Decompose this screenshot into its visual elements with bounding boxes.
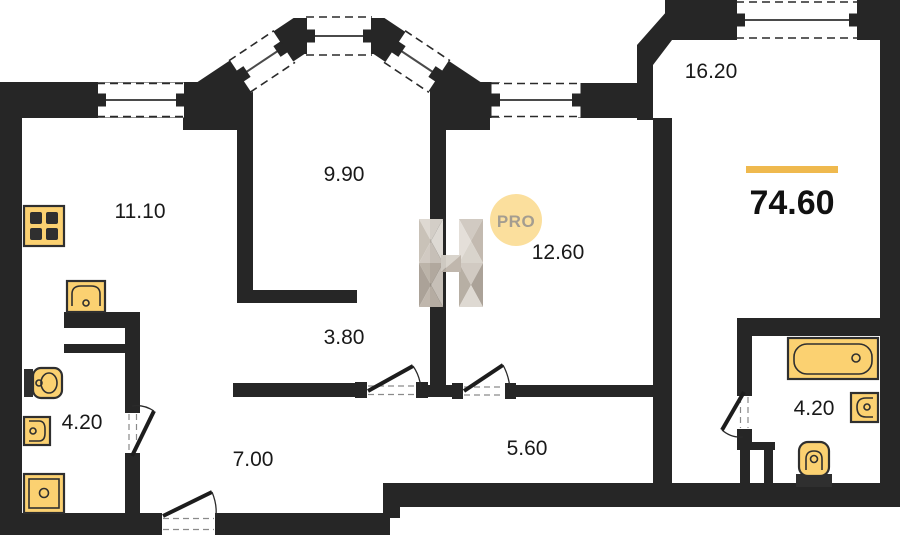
room-area-label-right-room: 16.20 bbox=[685, 60, 738, 83]
corridor-door bbox=[368, 366, 421, 395]
room4-window bbox=[736, 0, 858, 40]
wall-room3-bottom-b bbox=[516, 385, 670, 397]
shower-tray-icon bbox=[24, 474, 64, 513]
bath-left-door bbox=[129, 406, 154, 456]
wall-kitchen-top bbox=[0, 83, 101, 118]
room-area-label-kitchen: 11.10 bbox=[115, 200, 166, 223]
wall-bath-right-top bbox=[737, 318, 880, 336]
door-bath-right-hinge-bottom bbox=[737, 429, 752, 440]
logo-h-icon bbox=[419, 219, 483, 307]
shaft-right-wall bbox=[764, 450, 773, 483]
kitchen-sink-icon bbox=[67, 281, 105, 312]
room-area-label-bay-room: 9.90 bbox=[324, 163, 365, 186]
entry-door bbox=[163, 492, 216, 530]
shaft-top-wall bbox=[737, 442, 775, 450]
total-area-accent-bar bbox=[746, 166, 838, 173]
door-corridor-hinge-right bbox=[416, 382, 428, 398]
door-room3-hinge-left bbox=[452, 383, 463, 399]
room-area-label-hall: 7.00 bbox=[233, 448, 274, 471]
stove-icon bbox=[24, 206, 64, 246]
total-area-value: 74.60 bbox=[749, 184, 834, 222]
small-sink-right-icon bbox=[851, 393, 878, 422]
door-room3-hinge-right bbox=[505, 383, 516, 399]
door-entry-hinge-right bbox=[215, 513, 226, 535]
wall-bath-left-top-b bbox=[64, 344, 130, 353]
wall-right-outer bbox=[880, 0, 900, 507]
toilet-right-icon bbox=[796, 442, 832, 487]
kitchen-window bbox=[97, 83, 185, 118]
wall-bath-left-right-b bbox=[125, 464, 140, 513]
small-sink-left-icon bbox=[24, 417, 50, 445]
door-entry-hinge-left bbox=[150, 513, 162, 535]
room-area-label-middle-room: 12.60 bbox=[532, 241, 585, 264]
logo-pro-label: PRO bbox=[497, 212, 535, 231]
wall-bath-left-right-a bbox=[125, 312, 140, 403]
door-corridor-hinge-left bbox=[355, 382, 367, 398]
wall-room3-top-a bbox=[446, 83, 495, 118]
wall-room2-bottom bbox=[237, 290, 357, 303]
toilet-left-icon bbox=[24, 368, 62, 398]
door-bath-left-hinge-top bbox=[125, 402, 140, 413]
shaft-left-wall bbox=[740, 450, 750, 483]
wall-divider-kitchen bbox=[237, 100, 253, 303]
room-area-label-corridor: 3.80 bbox=[324, 326, 365, 349]
floorplan-canvas: PRO 11.10 9.90 12.60 16.20 3.80 4.20 7.0… bbox=[0, 0, 900, 535]
room-area-label-bath-right: 4.20 bbox=[794, 397, 835, 420]
bathtub-icon bbox=[788, 338, 878, 379]
room3-door bbox=[464, 365, 510, 395]
floorplan-svg: PRO 11.10 9.90 12.60 16.20 3.80 4.20 7.0… bbox=[0, 0, 900, 535]
wall-left-outer bbox=[0, 83, 22, 535]
room-area-label-bath-left: 4.20 bbox=[62, 411, 103, 434]
wall-room3-top-b bbox=[578, 83, 637, 118]
bay-window-top bbox=[306, 16, 372, 56]
wall-bottom-left-b bbox=[226, 513, 390, 535]
room3-window bbox=[491, 83, 581, 118]
wall-room4-left bbox=[653, 118, 672, 483]
wall-corridor-bottom bbox=[233, 383, 355, 397]
room-area-label-hall-right: 5.60 bbox=[507, 437, 548, 460]
wall-bath-right-left-a bbox=[737, 336, 752, 385]
wall-bottom-left-a bbox=[0, 513, 150, 535]
